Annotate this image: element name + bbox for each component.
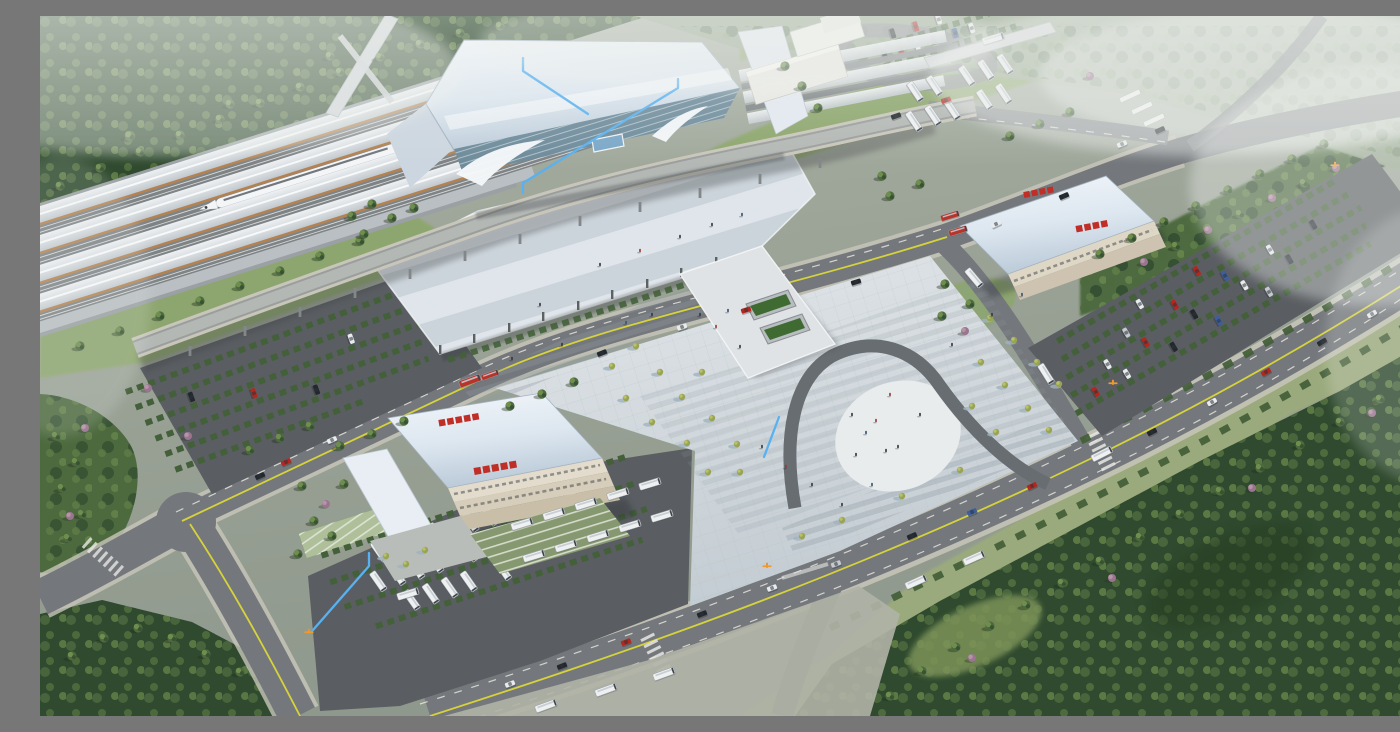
aerial-rendering: Aerial rendering of a high-speed railway… xyxy=(40,16,1400,716)
scene-canvas: Aerial rendering of a high-speed railway… xyxy=(40,16,1400,716)
